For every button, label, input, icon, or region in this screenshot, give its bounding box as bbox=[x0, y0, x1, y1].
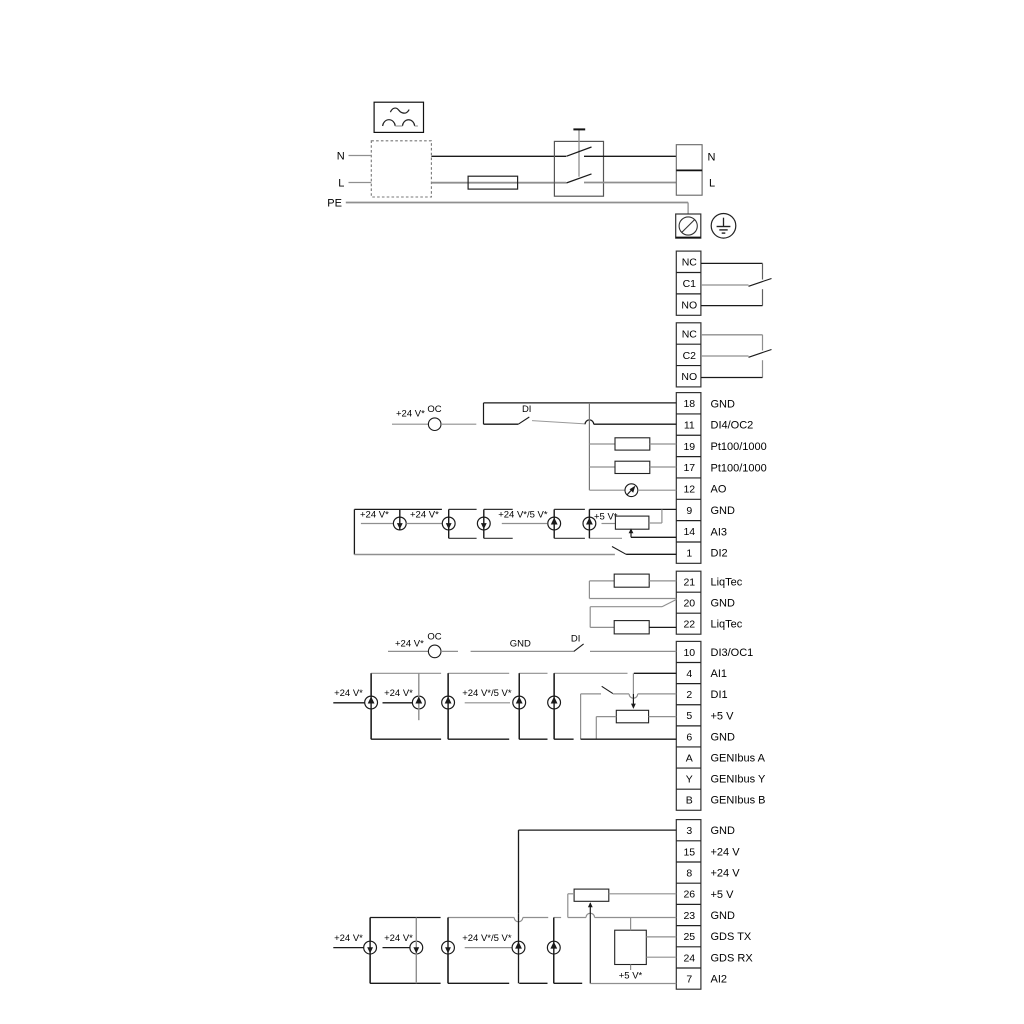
svg-text:24: 24 bbox=[683, 952, 695, 964]
svg-text:+5 V: +5 V bbox=[711, 889, 735, 901]
svg-text:18: 18 bbox=[683, 398, 695, 410]
svg-text:GDS RX: GDS RX bbox=[711, 952, 754, 964]
svg-text:+24 V*/5 V*: +24 V*/5 V* bbox=[462, 688, 512, 699]
svg-text:GDS TX: GDS TX bbox=[711, 931, 752, 943]
svg-text:OC: OC bbox=[427, 631, 441, 642]
svg-text:25: 25 bbox=[683, 931, 695, 943]
svg-text:2: 2 bbox=[686, 689, 692, 701]
svg-text:DI3/OC1: DI3/OC1 bbox=[711, 647, 754, 659]
svg-text:B: B bbox=[686, 795, 693, 807]
svg-text:GND: GND bbox=[711, 505, 736, 517]
svg-text:C2: C2 bbox=[683, 350, 697, 362]
svg-text:+24 V*: +24 V* bbox=[384, 688, 413, 699]
svg-text:+24 V: +24 V bbox=[711, 846, 741, 858]
svg-text:21: 21 bbox=[683, 577, 695, 589]
svg-text:N: N bbox=[708, 152, 716, 164]
svg-text:11: 11 bbox=[684, 420, 695, 432]
svg-text:+24 V*/5 V*: +24 V*/5 V* bbox=[462, 933, 512, 944]
svg-text:1: 1 bbox=[686, 548, 692, 560]
svg-text:C1: C1 bbox=[683, 278, 697, 290]
svg-text:A: A bbox=[686, 752, 693, 764]
svg-text:L: L bbox=[709, 177, 715, 189]
svg-text:N: N bbox=[337, 151, 345, 163]
svg-text:DI: DI bbox=[522, 404, 532, 415]
svg-text:GND: GND bbox=[510, 639, 531, 650]
svg-text:AO: AO bbox=[711, 484, 727, 496]
svg-text:+24 V*: +24 V* bbox=[360, 510, 389, 521]
svg-text:3: 3 bbox=[686, 825, 692, 837]
svg-text:DI4/OC2: DI4/OC2 bbox=[711, 420, 754, 432]
svg-text:+24 V: +24 V bbox=[711, 868, 741, 880]
svg-text:AI1: AI1 bbox=[711, 668, 728, 680]
svg-text:LiqTec: LiqTec bbox=[711, 619, 743, 631]
svg-text:4: 4 bbox=[686, 668, 692, 680]
svg-text:7: 7 bbox=[686, 974, 692, 986]
svg-text:AI3: AI3 bbox=[711, 526, 728, 538]
svg-text:Pt100/1000: Pt100/1000 bbox=[711, 462, 767, 474]
svg-text:22: 22 bbox=[683, 619, 695, 631]
svg-text:GND: GND bbox=[711, 825, 736, 837]
svg-text:+5 V: +5 V bbox=[711, 710, 735, 722]
svg-text:DI: DI bbox=[571, 634, 581, 645]
svg-text:+24 V*: +24 V* bbox=[410, 510, 439, 521]
svg-text:Pt100/1000: Pt100/1000 bbox=[711, 441, 767, 453]
svg-text:8: 8 bbox=[686, 868, 692, 880]
svg-text:L: L bbox=[338, 177, 344, 189]
svg-text:NO: NO bbox=[681, 371, 697, 383]
svg-text:12: 12 bbox=[683, 484, 695, 496]
svg-text:+24 V*: +24 V* bbox=[396, 409, 425, 420]
svg-text:GENIbus A: GENIbus A bbox=[711, 753, 766, 765]
svg-text:+24 V*: +24 V* bbox=[384, 933, 413, 944]
svg-text:AI2: AI2 bbox=[711, 974, 728, 986]
svg-text:14: 14 bbox=[683, 526, 695, 538]
svg-text:LiqTec: LiqTec bbox=[711, 577, 743, 589]
svg-text:5: 5 bbox=[686, 710, 692, 722]
svg-text:+5 V*: +5 V* bbox=[594, 511, 618, 522]
svg-text:6: 6 bbox=[686, 731, 692, 743]
svg-text:NO: NO bbox=[681, 300, 697, 312]
svg-text:15: 15 bbox=[683, 846, 695, 858]
svg-text:9: 9 bbox=[686, 505, 692, 517]
svg-text:GENIbus Y: GENIbus Y bbox=[711, 774, 766, 786]
svg-text:GND: GND bbox=[711, 910, 736, 922]
svg-text:+5 V*: +5 V* bbox=[619, 970, 643, 981]
svg-text:+24 V*: +24 V* bbox=[334, 933, 363, 944]
svg-text:NC: NC bbox=[682, 328, 698, 340]
svg-text:26: 26 bbox=[683, 889, 695, 901]
svg-text:NC: NC bbox=[682, 257, 698, 269]
svg-text:+24 V*/5 V*: +24 V*/5 V* bbox=[498, 510, 548, 521]
svg-text:DI2: DI2 bbox=[711, 548, 728, 560]
svg-text:20: 20 bbox=[683, 598, 695, 610]
svg-text:DI1: DI1 bbox=[711, 689, 728, 701]
svg-text:17: 17 bbox=[683, 462, 695, 474]
svg-text:GENIbus B: GENIbus B bbox=[711, 795, 766, 807]
svg-text:23: 23 bbox=[683, 910, 695, 922]
svg-text:OC: OC bbox=[427, 404, 441, 415]
svg-text:Y: Y bbox=[686, 774, 693, 786]
svg-text:GND: GND bbox=[711, 398, 736, 410]
svg-text:GND: GND bbox=[711, 731, 736, 743]
svg-text:+24 V*: +24 V* bbox=[334, 688, 363, 699]
svg-text:19: 19 bbox=[683, 441, 695, 453]
svg-text:PE: PE bbox=[327, 197, 342, 209]
svg-text:GND: GND bbox=[711, 598, 736, 610]
svg-text:+24 V*: +24 V* bbox=[395, 639, 424, 650]
svg-text:10: 10 bbox=[683, 647, 695, 659]
